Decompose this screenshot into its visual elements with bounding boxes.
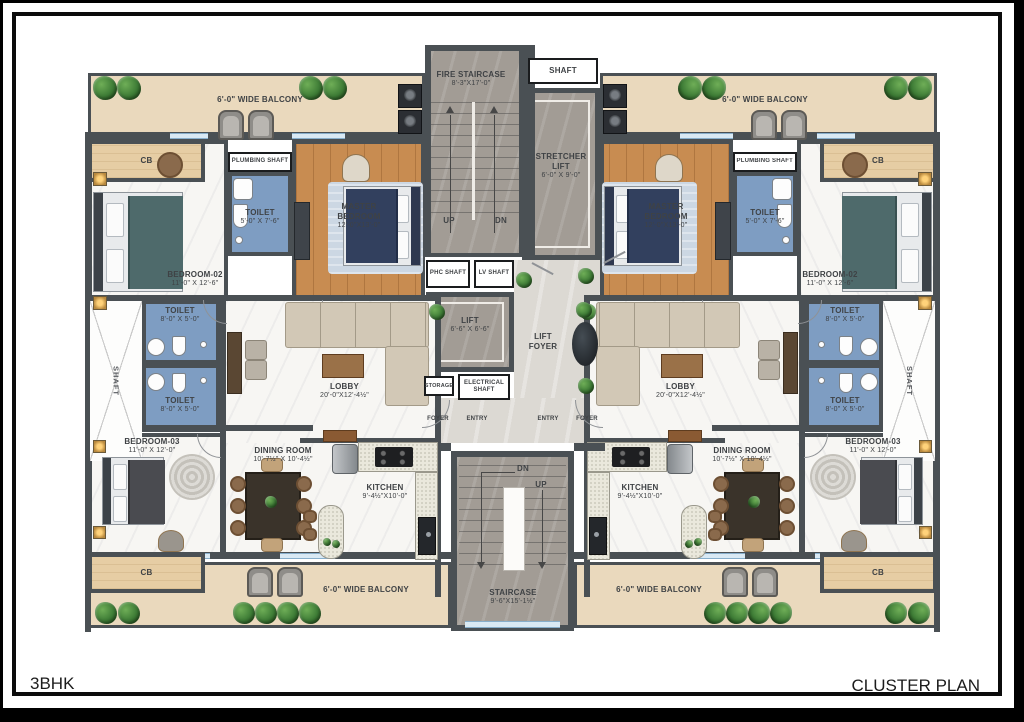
lv-shaft: LV SHAFT <box>474 260 514 288</box>
stair-treads <box>431 102 519 220</box>
decor-oval <box>572 322 598 366</box>
fridge-icon <box>667 444 693 474</box>
chair <box>655 154 683 182</box>
washer-icon <box>603 84 627 108</box>
staircase-label: STAIRCASE9'-6"X15'-1½" <box>460 588 566 607</box>
stool <box>708 528 722 541</box>
balcony-bottom-label: 6'-0" WIDE BALCONY <box>604 585 714 595</box>
balcony-chair <box>277 567 303 597</box>
toilet-a-label: TOILET8'-0" X 5'-0" <box>810 306 880 325</box>
wall <box>799 295 805 557</box>
stair-divider <box>472 102 475 220</box>
balcony-chair <box>752 567 778 597</box>
washbasin-icon <box>147 373 165 391</box>
wardrobe <box>294 202 310 260</box>
lift-label: LIFT6'-6" X 6'-6" <box>430 316 510 335</box>
dryer-icon <box>603 110 627 134</box>
plant-icon <box>323 538 331 546</box>
dining-chair <box>779 520 795 536</box>
plant-icon <box>95 602 117 624</box>
plant-icon <box>516 272 532 288</box>
plant-icon <box>118 602 140 624</box>
wc-icon <box>839 373 853 393</box>
ottoman <box>245 360 267 380</box>
bedroom-02-label: BEDROOM-0211'-0" X 12'-6" <box>140 270 250 289</box>
chair <box>158 530 184 552</box>
master-bedroom-label: MASTER BEDROOM12'-0"X13'-0" <box>629 202 703 231</box>
bedroom-02-label: BEDROOM-0211'-0" X 12'-6" <box>775 270 885 289</box>
plant-icon <box>770 602 792 624</box>
kitchen-sink <box>418 517 436 555</box>
table-plant-icon <box>748 496 760 508</box>
chair <box>342 154 370 182</box>
wc-icon <box>172 373 186 393</box>
stove-icon <box>612 447 650 467</box>
shower-icon <box>235 236 243 244</box>
kitchen-sink <box>589 517 607 555</box>
window <box>170 133 208 139</box>
wall <box>220 295 226 557</box>
cb-label: CB <box>141 568 153 578</box>
cb-label: CB <box>873 568 885 578</box>
plant-icon <box>578 268 594 284</box>
plant-icon <box>299 602 321 624</box>
down-arrow-icon <box>538 562 546 569</box>
plant-icon <box>748 602 770 624</box>
lift-foyer-label: LIFTFOYER <box>518 332 568 352</box>
balcony-chair <box>218 110 244 140</box>
round-rug <box>810 454 856 500</box>
side-shaft-label: SHAFT <box>111 366 120 396</box>
lamp-icon <box>918 296 932 310</box>
washbasin-icon <box>860 338 878 356</box>
dn-label: DN <box>488 216 514 226</box>
washbasin-icon <box>860 373 878 391</box>
toilet-a-label: TOILET8'-0" X 5'-0" <box>145 306 215 325</box>
arrow-line <box>542 490 543 562</box>
dining-chair <box>296 476 312 492</box>
bedroom-03-label: BEDROOM-0311'-0" X 12'-0" <box>97 437 207 456</box>
dining-chair <box>230 498 246 514</box>
fridge-icon <box>332 444 358 474</box>
shower-icon <box>782 236 790 244</box>
arrow-line <box>481 472 515 473</box>
balcony-top-label: 6'-0" WIDE BALCONY <box>685 95 845 105</box>
master-bedroom-label: MASTER BEDROOM12'-0"X13'-0" <box>322 202 396 231</box>
dining-chair <box>713 476 729 492</box>
shower-icon <box>200 341 207 348</box>
balcony-top-label: 6'-0" WIDE BALCONY <box>180 95 340 105</box>
plant-icon <box>908 76 932 100</box>
plumbing-shaft: PLUMBING SHAFT <box>733 152 797 172</box>
entry-left-label: ENTRY <box>460 416 494 424</box>
plant-icon <box>255 602 277 624</box>
kitchen-label: KITCHEN9'-4½"X10'-0" <box>590 483 690 502</box>
plant-icon <box>694 538 702 546</box>
dining-chair <box>779 498 795 514</box>
plan-name-label: CLUSTER PLAN <box>852 676 980 696</box>
coffee-table <box>322 354 364 378</box>
plant-icon <box>576 302 592 318</box>
stool <box>708 510 722 523</box>
storage: STORAGE <box>424 376 454 396</box>
washer-icon <box>398 84 422 108</box>
stool <box>303 528 317 541</box>
shower-icon <box>818 377 825 384</box>
wc-icon <box>172 336 186 356</box>
lamp-icon <box>93 172 107 186</box>
plumbing-shaft: PLUMBING SHAFT <box>228 152 292 172</box>
balcony-chair <box>751 110 777 140</box>
table-plant-icon <box>265 496 277 508</box>
up-arrow-icon <box>490 106 498 113</box>
plant-icon <box>277 602 299 624</box>
console-table <box>783 332 798 394</box>
side-shaft-label: SHAFT <box>904 366 913 396</box>
ottoman <box>245 340 267 360</box>
toilet-b-label: TOILET8'-0" X 5'-0" <box>810 396 880 415</box>
entry-right-label: ENTRY <box>531 416 565 424</box>
dining-room-label: DINING ROOM10'-7½" X 10'-4½" <box>233 446 333 465</box>
dryer-icon <box>398 110 422 134</box>
sofa <box>596 302 740 348</box>
lamp-icon <box>93 526 106 539</box>
console-table <box>227 332 242 394</box>
plant-icon <box>908 602 930 624</box>
washbasin-icon <box>772 178 792 200</box>
coffee-table <box>661 354 703 378</box>
plant-icon <box>685 540 693 548</box>
kitchen-shelf <box>323 430 357 442</box>
cb-label: CB <box>873 156 885 166</box>
floor-plan: 6'-0" WIDE BALCONY <box>0 0 1024 722</box>
lamp-icon <box>918 172 932 186</box>
plant-icon <box>704 602 726 624</box>
cupboard-box: CB <box>88 553 205 593</box>
window <box>817 133 855 139</box>
up-arrow-icon <box>446 106 454 113</box>
dining-room-label: DINING ROOM10'-7½" X 10'-4½" <box>692 446 792 465</box>
chair <box>157 152 183 178</box>
wardrobe <box>715 202 731 260</box>
foyer-left-label: FOYER <box>422 416 454 424</box>
plant-icon <box>578 378 594 394</box>
stretcher-lift-label: STRETCHERLIFT6'-0" X 9'-0" <box>524 152 598 181</box>
bed <box>102 457 164 525</box>
kitchen-island <box>681 505 707 559</box>
down-arrow-icon <box>477 562 485 569</box>
chair <box>841 530 867 552</box>
kitchen-shelf <box>668 430 702 442</box>
balcony-chair <box>247 567 273 597</box>
dining-chair <box>261 538 283 552</box>
wall <box>805 361 883 366</box>
up-label: UP <box>436 216 462 226</box>
chair <box>842 152 868 178</box>
plant-icon <box>726 602 748 624</box>
stair-landing <box>503 487 525 571</box>
plant-icon <box>884 76 908 100</box>
bedroom-03-label: BEDROOM-0311'-0" X 12'-0" <box>818 437 928 456</box>
plant-icon <box>233 602 255 624</box>
kitchen-island <box>318 505 344 559</box>
toilet-small-label: TOILET5'-0" X 7'-6" <box>737 208 793 227</box>
ottoman <box>758 360 780 380</box>
plant-icon <box>117 76 141 100</box>
shower-icon <box>200 377 207 384</box>
lamp-icon <box>93 296 107 310</box>
shower-icon <box>818 341 825 348</box>
bed <box>861 457 923 525</box>
toilet-small-label: TOILET5'-0" X 7'-6" <box>232 208 288 227</box>
plant-icon <box>332 540 340 548</box>
window <box>465 621 560 628</box>
dining-chair <box>230 476 246 492</box>
plant-icon <box>885 602 907 624</box>
arrow-line <box>481 472 482 562</box>
unit-left: 6'-0" WIDE BALCONY <box>85 40 455 640</box>
lobby-label: LOBBY20'-0"X12'-4½" <box>297 382 392 401</box>
stool <box>303 510 317 523</box>
kitchen-label: KITCHEN9'-4½"X10'-0" <box>335 483 435 502</box>
washbasin-icon <box>233 178 253 200</box>
balcony-chair <box>781 110 807 140</box>
up-label: UP <box>528 480 554 490</box>
shaft-top: SHAFT <box>528 58 598 84</box>
electrical-shaft: ELECTRICALSHAFT <box>458 374 510 400</box>
balcony-chair <box>722 567 748 597</box>
sofa <box>285 302 429 348</box>
balcony-chair <box>248 110 274 140</box>
unit-right: 6'-0" WIDE BALCONY <box>570 40 940 640</box>
dining-chair <box>779 476 795 492</box>
wall <box>142 361 220 366</box>
plant-icon <box>93 76 117 100</box>
washbasin-icon <box>147 338 165 356</box>
round-rug <box>169 454 215 500</box>
wc-icon <box>839 336 853 356</box>
dining-chair <box>742 538 764 552</box>
window <box>292 133 345 139</box>
lamp-icon <box>919 526 932 539</box>
foyer-right-label: FOYER <box>571 416 603 424</box>
cupboard-box: CB <box>820 553 937 593</box>
stove-icon <box>375 447 413 467</box>
window <box>680 133 733 139</box>
lobby-label: LOBBY20'-0"X12'-4½" <box>633 382 728 401</box>
cb-label: CB <box>141 156 153 166</box>
balcony-bottom-label: 6'-0" WIDE BALCONY <box>311 585 421 595</box>
fire-staircase-label: FIRE STAIRCASE8'-3"X17'-0" <box>424 70 518 89</box>
wall <box>574 443 605 451</box>
dining-chair <box>230 520 246 536</box>
toilet-b-label: TOILET8'-0" X 5'-0" <box>145 396 215 415</box>
ottoman <box>758 340 780 360</box>
plan-type-label: 3BHK <box>30 674 74 694</box>
phc-shaft: PHC SHAFT <box>426 260 470 288</box>
